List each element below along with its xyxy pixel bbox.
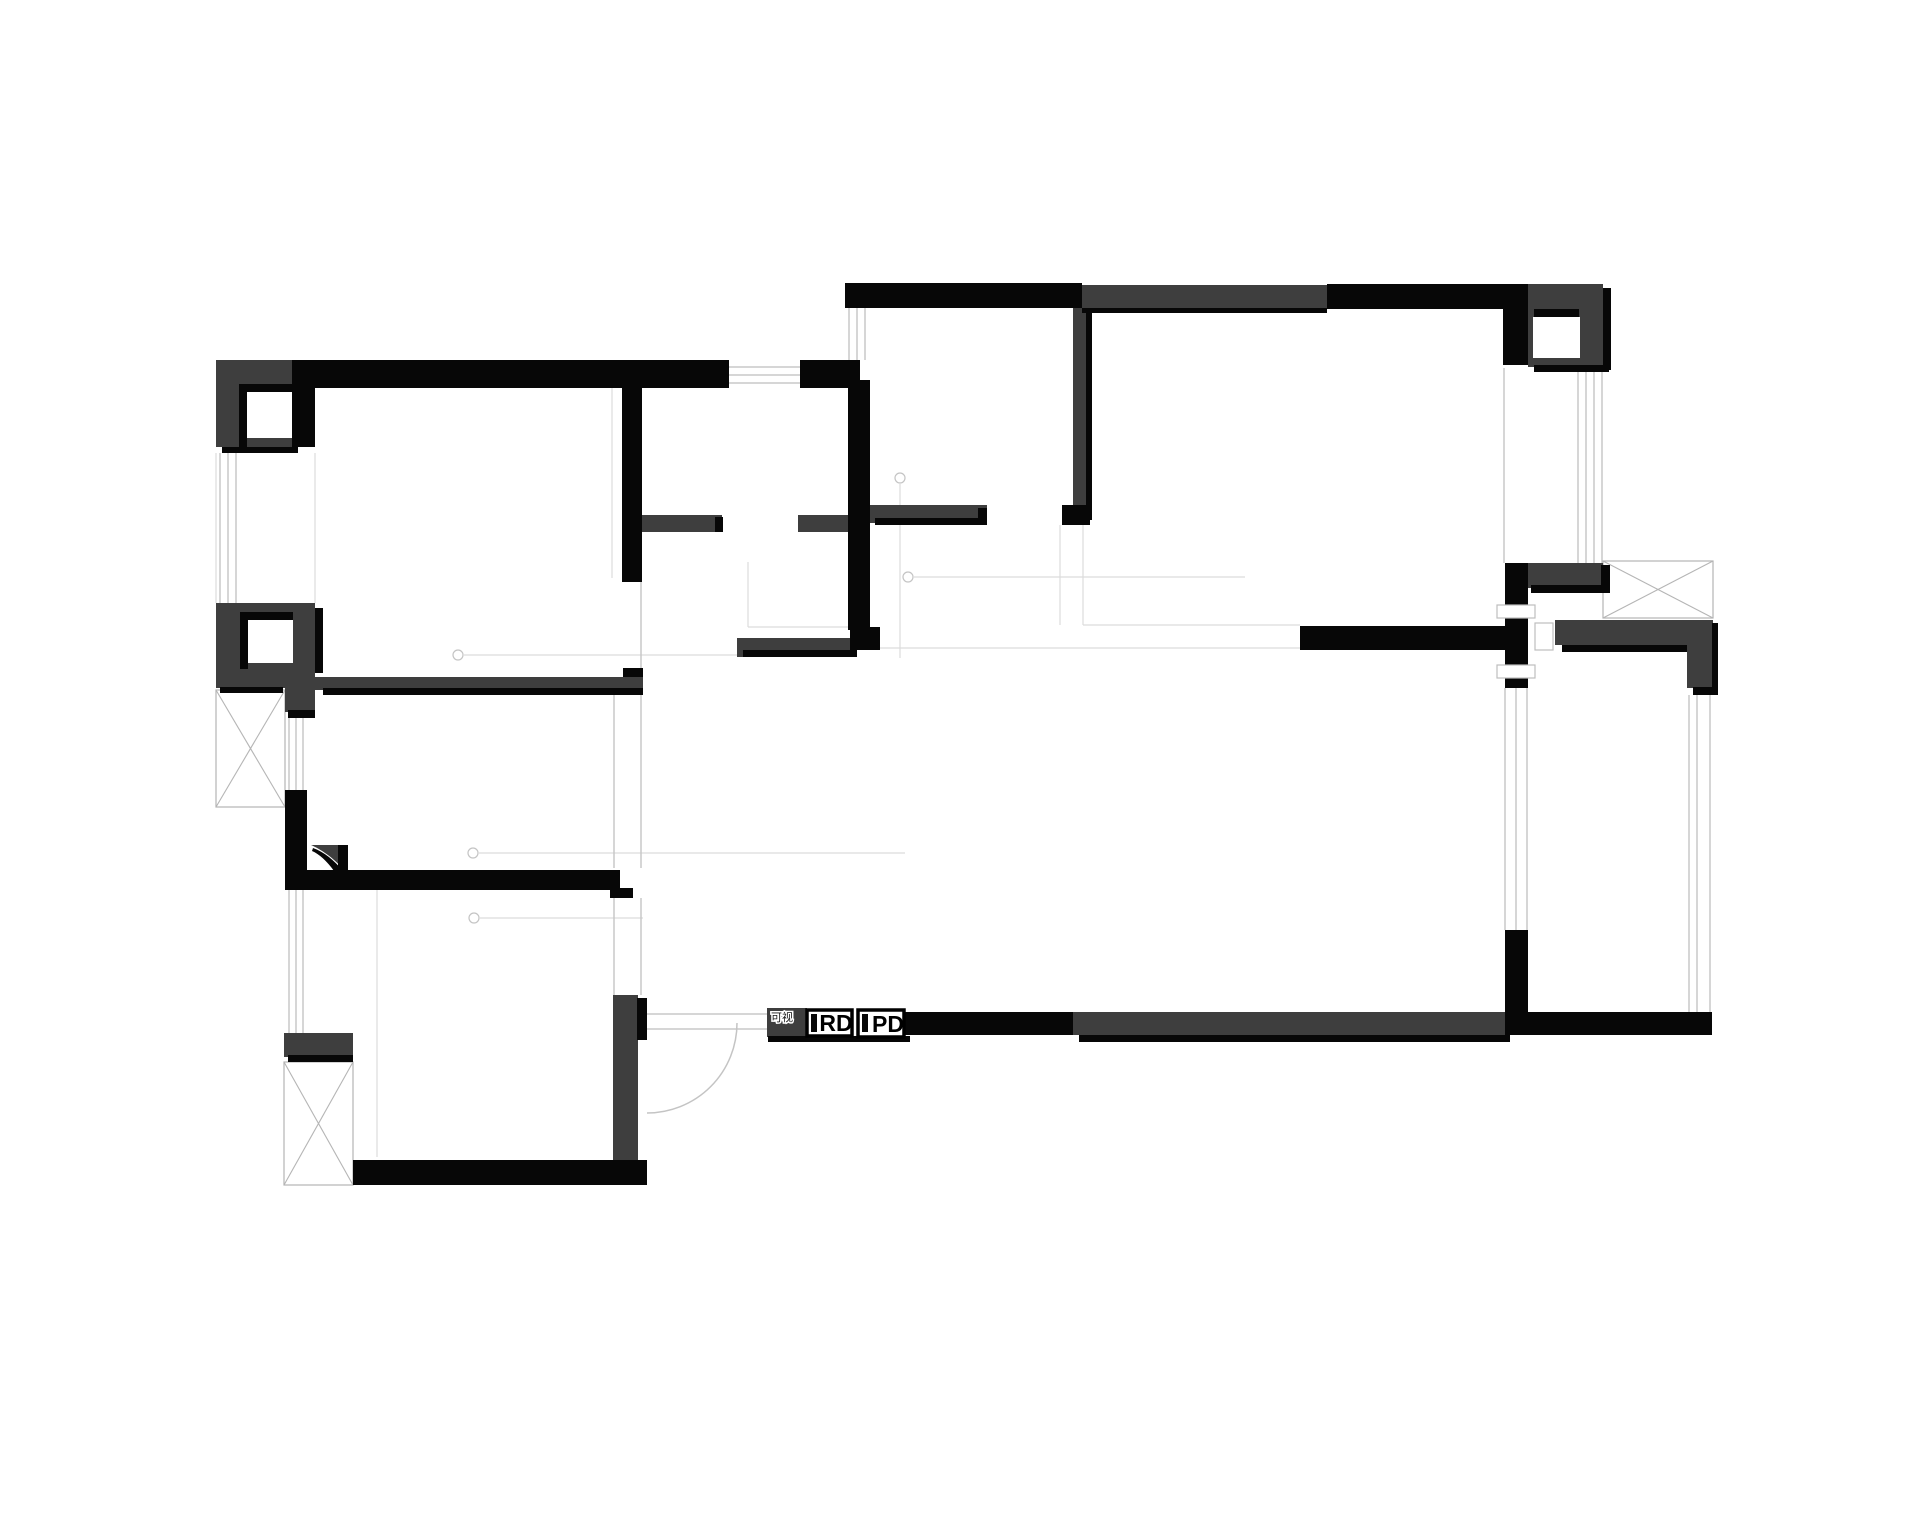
wall-segment xyxy=(292,360,729,388)
wall-segment xyxy=(285,790,307,872)
wall-segment xyxy=(903,1012,1073,1035)
shaft-bottom-left xyxy=(284,1062,353,1185)
column-edge xyxy=(220,687,283,693)
wall-edge xyxy=(637,998,647,1040)
leader-marker xyxy=(469,913,479,923)
column-inset-border xyxy=(239,384,292,392)
column-inset-border xyxy=(1534,309,1579,317)
shaft-left-middle xyxy=(216,690,285,807)
wall-notch xyxy=(610,888,633,898)
fixture-outline xyxy=(1535,623,1553,650)
windows xyxy=(220,308,1710,1033)
wall-underline xyxy=(743,650,857,657)
wall-stub xyxy=(1062,505,1090,525)
hall-opening-lines xyxy=(614,582,641,995)
wall-segment xyxy=(1300,626,1528,650)
column-edge xyxy=(1603,288,1611,370)
pd-text: PD xyxy=(872,1011,904,1037)
fixture-outline xyxy=(1497,665,1535,678)
column-edge xyxy=(315,608,323,673)
intercom-label: 可视 xyxy=(771,1010,793,1024)
wall-notch xyxy=(288,710,315,718)
rd-text: RD xyxy=(819,1010,852,1036)
fixture-outline xyxy=(1497,605,1535,618)
wall-segment xyxy=(622,388,642,582)
rd-tick xyxy=(811,1014,817,1032)
wall-underline xyxy=(1531,585,1610,593)
door-swing-flag xyxy=(311,845,348,872)
wall-cap xyxy=(715,517,723,532)
leader-marker xyxy=(468,848,478,858)
wall-segment xyxy=(1073,1012,1505,1035)
wall-underline xyxy=(323,688,643,695)
wall-segment xyxy=(1555,620,1710,645)
leader-marker xyxy=(453,650,463,660)
wall-segment xyxy=(353,1160,647,1185)
wall-segment xyxy=(1505,930,1528,1012)
column-inset xyxy=(1533,317,1580,358)
wall-notch xyxy=(623,668,643,677)
wall-underline xyxy=(1562,645,1687,652)
wall-edge xyxy=(1086,308,1092,520)
wall-edge xyxy=(1601,565,1610,593)
wall-underline xyxy=(1079,1035,1510,1042)
column-inset-border xyxy=(240,612,248,669)
ac-platform-balcony xyxy=(1603,561,1713,618)
column-edge xyxy=(222,447,298,453)
wall-segment xyxy=(285,688,315,712)
door-swing-arc xyxy=(647,1023,737,1113)
wall-underline xyxy=(288,1055,353,1062)
rd-label-box: RD xyxy=(807,1010,853,1036)
entrance-door xyxy=(647,1023,737,1113)
column-inset xyxy=(247,392,292,438)
wall-segment xyxy=(640,515,722,532)
leader-marker xyxy=(903,572,913,582)
column-edge xyxy=(1503,309,1528,365)
wall-segment xyxy=(285,870,620,890)
wall-segment xyxy=(845,283,1082,308)
wall-underline xyxy=(1082,308,1327,313)
wall-segment xyxy=(1082,285,1327,310)
column-edge xyxy=(292,388,315,447)
wall-segment xyxy=(1327,284,1528,309)
wall-underline xyxy=(875,518,987,525)
wall-segment xyxy=(613,995,638,1163)
wall-segment xyxy=(1528,563,1603,588)
pd-label-box: PD xyxy=(858,1010,904,1037)
wall-segment xyxy=(284,1033,353,1057)
column-edge xyxy=(1534,365,1609,372)
wall-segment xyxy=(848,380,870,630)
column-inset-border xyxy=(240,612,293,620)
pd-tick xyxy=(862,1014,868,1032)
wall-segment xyxy=(1505,1012,1712,1035)
leader-marker xyxy=(895,473,905,483)
wall-segment xyxy=(798,515,850,532)
wall-edge xyxy=(1712,623,1718,693)
walls-black xyxy=(220,283,1718,1185)
wall-segment xyxy=(1687,620,1713,688)
column-inset xyxy=(248,620,293,663)
wall-cap xyxy=(978,508,987,525)
door-jamb xyxy=(338,845,348,872)
column-inset-border xyxy=(239,384,247,447)
floor-plan-page: 可视 RD PD xyxy=(0,0,1923,1518)
wall-foot xyxy=(850,627,880,650)
floor-plan-svg: 可视 RD PD xyxy=(0,0,1923,1518)
